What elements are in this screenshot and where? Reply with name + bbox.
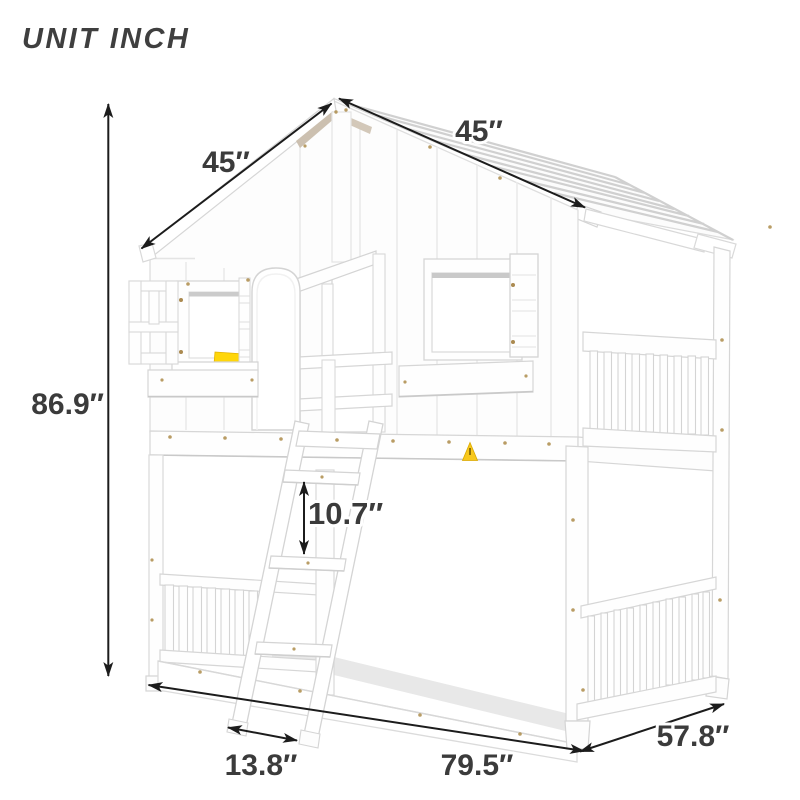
svg-text:86.9″: 86.9″ [31,388,104,421]
svg-text:UNIT INCH: UNIT INCH [22,23,190,55]
svg-text:10.7″: 10.7″ [308,496,383,531]
svg-text:13.8″: 13.8″ [225,749,298,782]
svg-text:57.8″: 57.8″ [657,720,730,753]
svg-text:45″: 45″ [202,146,250,179]
svg-text:45″: 45″ [455,115,503,148]
svg-text:79.5″: 79.5″ [441,749,514,782]
